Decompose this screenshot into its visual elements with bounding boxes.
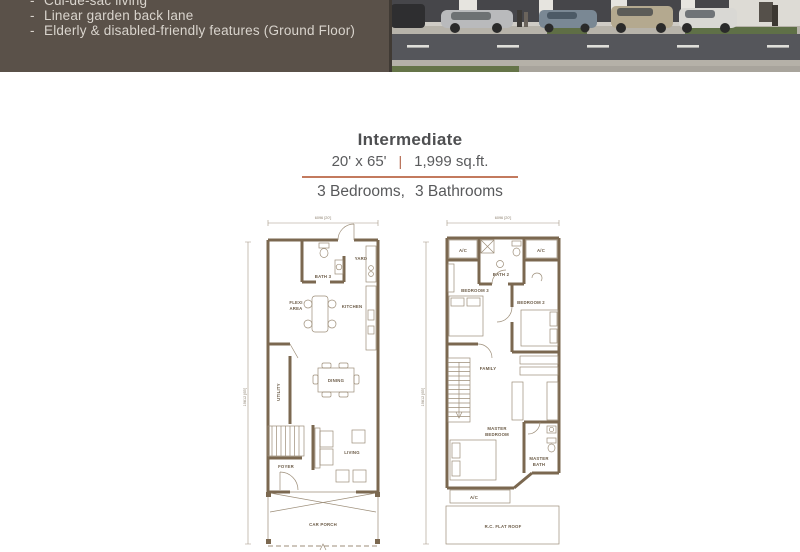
page-title: Intermediate	[160, 130, 660, 150]
street-photo-graphic	[389, 0, 800, 72]
room-label-bath2: BATH 2	[493, 272, 510, 277]
unit-dimensions: 20' x 65'	[332, 153, 387, 170]
room-label-flexi: AREA	[290, 306, 303, 311]
feature-bullet: -	[30, 0, 44, 8]
feature-item: -Linear garden back lane	[30, 8, 389, 23]
room-label-master-bath: MASTER	[529, 456, 549, 461]
accent-divider	[302, 176, 518, 178]
room-label-bath3: BATH 3	[315, 274, 332, 279]
room-label-ac-right: A/C	[537, 248, 545, 253]
brochure-page: -Cul-de-sac living -Linear garden back l…	[0, 0, 800, 552]
plan-width-dimension: 6096 [20']	[495, 216, 512, 220]
bathrooms-count: 3 Bathrooms	[415, 183, 503, 200]
room-label-bedroom2: BEDROOM 2	[517, 300, 545, 305]
room-label-flexi: FLEXI	[289, 300, 302, 305]
room-label-master-bedroom: BEDROOM	[485, 432, 509, 437]
unit-area: 1,999 sq.ft.	[414, 153, 488, 170]
room-label-ac-bottom: A/C	[470, 495, 478, 500]
room-label-master-bedroom: MASTER	[487, 426, 507, 431]
unit-rooms-summary: 3 Bedrooms,3 Bathrooms	[160, 183, 660, 201]
room-label-utility: UTILITY	[276, 383, 281, 401]
header-band: -Cul-de-sac living -Linear garden back l…	[0, 0, 800, 72]
room-label-master-bath: BATH	[533, 462, 545, 467]
plan-width-dimension: 6096 [20']	[315, 216, 332, 220]
plan-depth-dimension: 19812 [65']	[243, 388, 247, 407]
room-label-bedroom3: BEDROOM 3	[461, 288, 489, 293]
room-label-living: LIVING	[344, 450, 360, 455]
spec-separator: |	[387, 153, 415, 169]
plan-depth-dimension: 19812 [65']	[421, 388, 425, 407]
room-label-dining: DINING	[328, 378, 345, 383]
room-label-family: FAMILY	[480, 366, 497, 371]
bedrooms-count: 3 Bedrooms,	[317, 183, 405, 200]
feature-bullet: -	[30, 23, 44, 38]
room-label-flat-roof: R.C. FLAT ROOF	[485, 524, 522, 529]
feature-item: -Cul-de-sac living	[30, 0, 389, 8]
feature-text: Elderly & disabled-friendly features (Gr…	[44, 23, 355, 38]
first-floor-plan: 6096 [20'] 19812 [65'] A/C A/C BATH 2 BE	[420, 212, 580, 552]
street-render-photo	[389, 0, 800, 72]
feature-bullet: -	[30, 8, 44, 23]
unit-title-block: Intermediate 20' x 65'|1,999 sq.ft. 3 Be…	[160, 130, 660, 201]
unit-specs: 20' x 65'|1,999 sq.ft.	[160, 153, 660, 170]
room-label-car-porch: CAR PORCH	[309, 522, 337, 527]
feature-item: -Elderly & disabled-friendly features (G…	[30, 23, 389, 38]
room-label-foyer: FOYER	[278, 464, 294, 469]
feature-text: Linear garden back lane	[44, 8, 193, 23]
features-panel: -Cul-de-sac living -Linear garden back l…	[0, 0, 389, 72]
room-label-kitchen: KITCHEN	[342, 304, 363, 309]
ground-floor-plan: 6096 [20'] 19812 [65'] BATH 3 YARD KITCH…	[240, 212, 400, 552]
features-list: -Cul-de-sac living -Linear garden back l…	[0, 0, 389, 38]
room-label-ac-left: A/C	[459, 248, 467, 253]
room-label-yard: YARD	[355, 256, 368, 261]
feature-text: Cul-de-sac living	[44, 0, 147, 8]
